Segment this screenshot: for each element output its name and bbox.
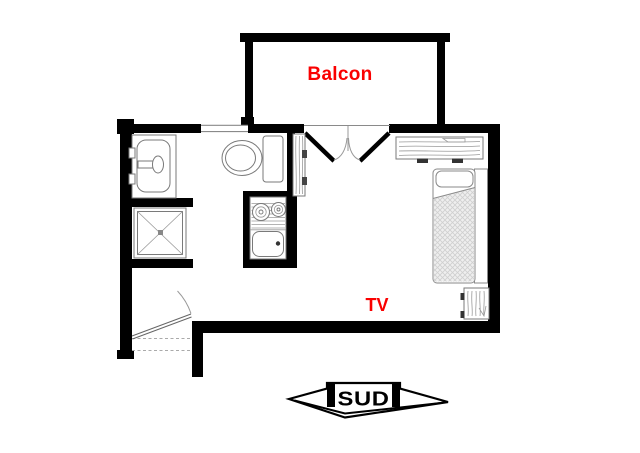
balcony-wall-left-cap (241, 117, 254, 125)
balcony-label: Balcon (294, 64, 386, 86)
dresser-foot-right (452, 159, 463, 164)
balcony-door-right-leaf (360, 133, 389, 161)
wall-left (120, 124, 132, 358)
bed (433, 169, 488, 283)
south-arrow-right-bracket (392, 383, 400, 407)
toilet (222, 136, 283, 182)
toilet-cistern (263, 136, 283, 182)
south-arrow-left-bracket (327, 383, 335, 407)
sink-faucet-head (153, 156, 164, 173)
dresser-body (396, 137, 483, 159)
bed-pillow (436, 171, 473, 187)
nightstand-tab-bottom (461, 311, 465, 318)
balcony-door-left-swing-arc (334, 138, 347, 160)
entrance-door-leaf-edge-1 (132, 314, 191, 336)
floor-plan: SUD Balcon TV (0, 0, 640, 453)
south-label: SUD (338, 388, 390, 411)
wall-bathroom-bottom (131, 259, 193, 268)
wall-kitchen-right (286, 198, 297, 268)
bed-duvet-roll (475, 169, 488, 283)
balcony-wall-left (245, 42, 253, 124)
nightstand (461, 288, 490, 319)
tv-label: TV (350, 295, 404, 316)
sink-control-bottom (129, 174, 135, 184)
wall-top-mid (248, 124, 304, 133)
sink-control-top (129, 148, 135, 158)
bathroom-sink (129, 135, 176, 198)
wall-right (488, 124, 500, 333)
entrance-door (132, 291, 192, 351)
wall-bottom (192, 321, 500, 333)
wall-kitchen-left (243, 191, 250, 260)
wall-kitchen-bottom (243, 259, 297, 268)
shower-drain (158, 230, 163, 235)
stove-burner-left (253, 204, 270, 221)
balcony-door-right-swing-arc (349, 138, 361, 160)
south-indicator: SUD (289, 383, 448, 418)
nightstand-tab-top (461, 293, 465, 300)
bathroom-window (201, 125, 248, 131)
dresser (396, 137, 483, 163)
sink-faucet-arm (138, 161, 154, 168)
wardrobe-handle-top (302, 150, 307, 158)
bed-blanket (434, 188, 474, 282)
dresser-foot-left (417, 159, 428, 164)
wall-top-right (389, 124, 500, 133)
entrance-door-leaf-edge-2 (133, 317, 192, 339)
balcony-wall-right (437, 42, 445, 124)
kitchen-sink-faucet (276, 241, 280, 245)
entrance-door-swing-arc (178, 291, 192, 314)
balcony-wall-top (240, 33, 450, 42)
wardrobe (293, 134, 307, 196)
balcony-door (304, 126, 390, 162)
wall-bathroom-mid (129, 198, 193, 207)
toilet-bowl-inner (226, 145, 256, 171)
wall-entry-side (192, 321, 203, 377)
stove-burner-right (272, 203, 286, 217)
shower (134, 208, 186, 258)
wall-left-end-cap (117, 350, 134, 359)
balcony-door-left-leaf (305, 133, 334, 161)
wardrobe-handle-bottom (302, 177, 307, 185)
kitchenette (250, 197, 286, 259)
